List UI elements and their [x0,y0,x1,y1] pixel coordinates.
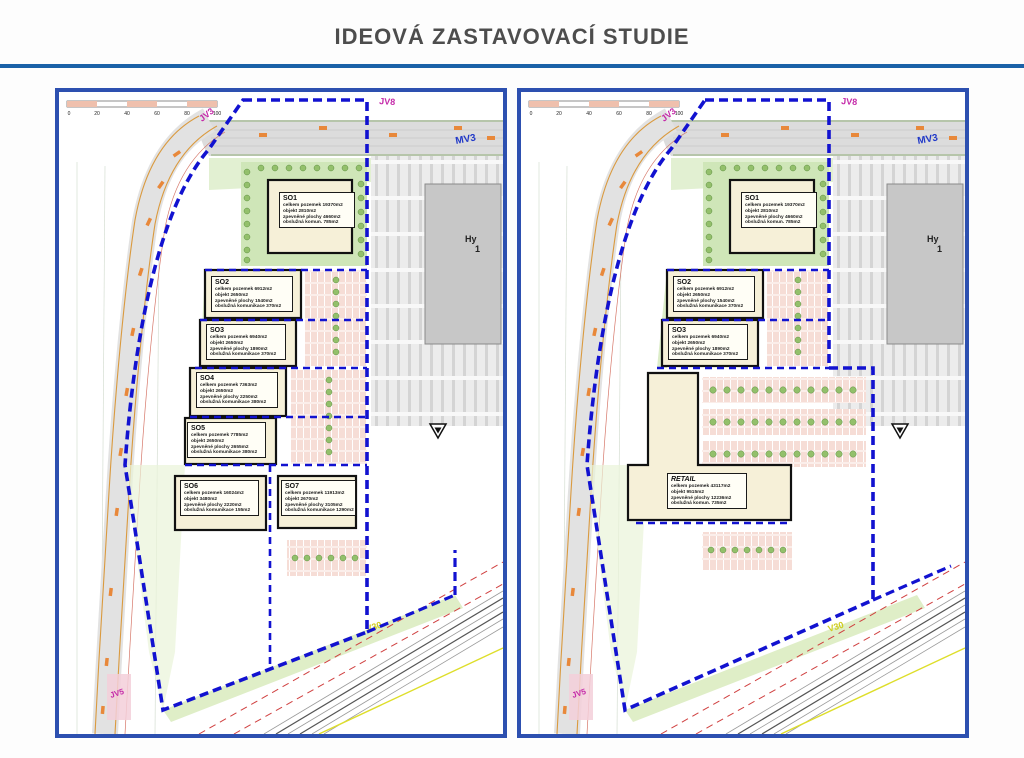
site-plan-right: SO1 celkem pozemek 19370m2 objekt 2810m2… [517,88,969,738]
building-name: SO1 [283,195,352,203]
building-name: RETAIL [671,476,744,484]
building-info-so6: SO6 celkem pozemek 16024m2 objekt 3480m2… [180,480,259,516]
site-plan-right-drawing [521,92,965,734]
building-info-so4: SO4 celkem pozemek 7363m2 objekt 2650m2 … [196,372,278,408]
page-header: IDEOVÁ ZASTAVOVACÍ STUDIE [0,24,1024,50]
building-info-so7: SO7 celkem pozemek 11913m2 objekt 2670m2… [281,480,356,516]
building-info-so1: SO1 celkem pozemek 19370m2 objekt 2810m2… [741,192,817,228]
building-name: SO2 [677,279,752,287]
title-divider [0,64,1024,68]
building-info-so2: SO2 celkem pozemek 6912m2 objekt 2650m2 … [673,276,755,312]
building-name: SO5 [191,425,263,433]
building-info-so3: SO3 celkem pozemek 6940m2 objekt 2650m2 … [206,324,286,360]
site-plan-left-drawing [59,92,503,734]
building-name: SO7 [285,483,353,491]
building-name: SO6 [184,483,256,491]
page-title: IDEOVÁ ZASTAVOVACÍ STUDIE [0,24,1024,50]
building-info-so5: SO5 celkem pozemek 7785m2 objekt 2650m2 … [187,422,266,458]
building-info-retail: RETAIL celkem pozemek 43117m2 objekt 951… [667,473,747,509]
building-info-so3: SO3 celkem pozemek 6940m2 objekt 2650m2 … [668,324,748,360]
building-info-so1: SO1 celkem pozemek 19370m2 objekt 2810m2… [279,192,355,228]
building-name: SO2 [215,279,290,287]
page: IDEOVÁ ZASTAVOVACÍ STUDIE [0,0,1024,758]
building-name: SO3 [210,327,283,335]
building-info-so2: SO2 celkem pozemek 6912m2 objekt 2650m2 … [211,276,293,312]
building-name: SO1 [745,195,814,203]
building-name: SO4 [200,375,275,383]
site-plan-left: SO1 celkem pozemek 19370m2 objekt 2810m2… [55,88,507,738]
building-name: SO3 [672,327,745,335]
